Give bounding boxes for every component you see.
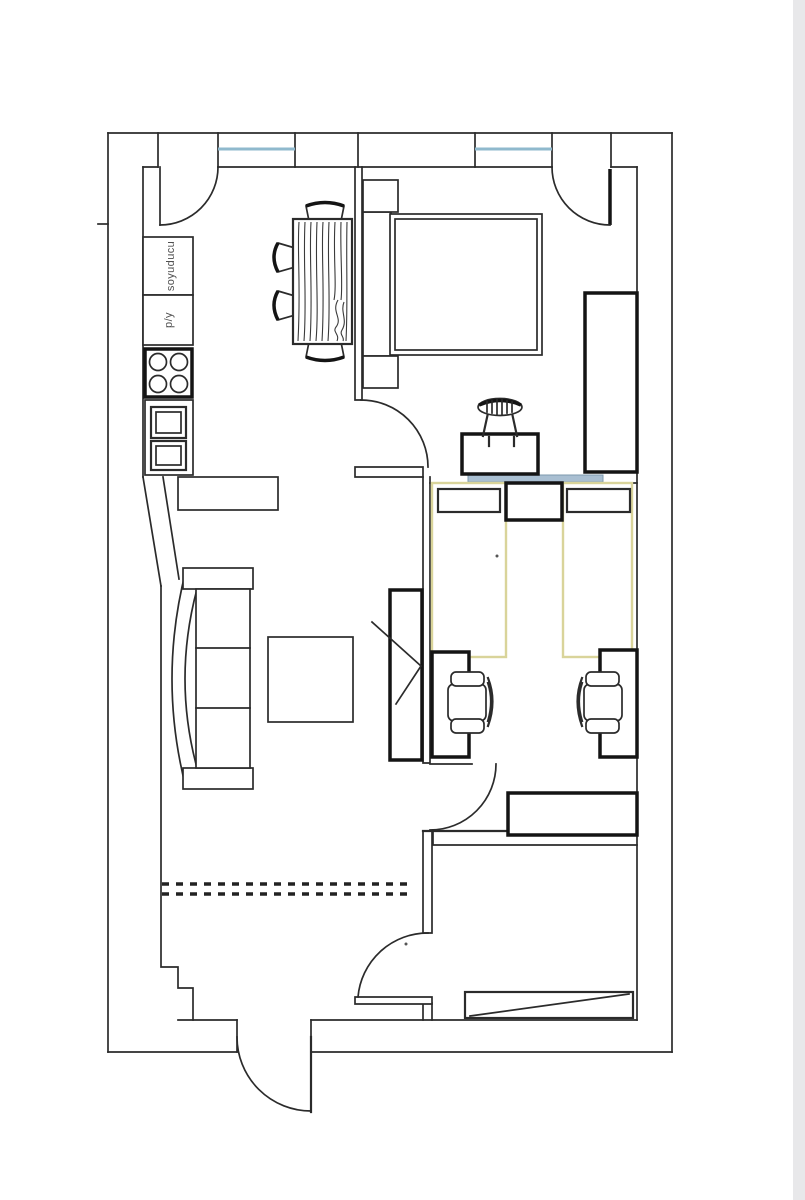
entry-door-jambs (237, 1020, 311, 1052)
door-kidsroom-swing-arc (430, 764, 496, 830)
wall-hall-kidsroom (423, 477, 430, 763)
kids-chair-left-armrest-bottom (451, 719, 484, 733)
door-bedroom (552, 167, 610, 225)
living-room (162, 568, 422, 894)
wall-living-left-steps (161, 586, 193, 1020)
sofa-armrest-bottom (183, 768, 253, 789)
kitchen-counter (178, 477, 278, 510)
ceiling-beam-dashed-lines (162, 884, 408, 894)
floor-plan-canvas: soyuducu p/y (0, 0, 805, 1200)
sofa-armrest-top (183, 568, 253, 589)
kids-chair-left-seat (448, 684, 486, 721)
kids-nightstand (506, 483, 562, 520)
door-entry-swing-arc (237, 1037, 311, 1111)
kids-chair-right (578, 672, 623, 733)
dining-chair-left-1-back (274, 243, 278, 272)
wall-kitchen-bedroom (355, 167, 362, 400)
wall-hall-stub (355, 467, 423, 477)
sofa (172, 568, 253, 789)
floor-plan-drawing: soyuducu p/y (0, 0, 805, 1200)
coffee-table (268, 637, 353, 722)
scan-edge-strip (793, 0, 805, 1200)
nightstand-bottom (363, 356, 398, 388)
door-kidsroom (430, 764, 496, 830)
tv-unit (372, 590, 422, 760)
wall-kitchen-diagonal (143, 477, 179, 586)
kitchen: soyuducu p/y (143, 237, 278, 510)
wall-hall-bathroom (423, 831, 432, 933)
kids-wardrobe (508, 793, 637, 835)
wall-bathroom-door-jamb (423, 1003, 432, 1020)
nightstand-top (363, 180, 398, 212)
plan-speck (496, 555, 499, 558)
kids-bed-right-pillow (567, 489, 630, 512)
stove (145, 349, 192, 397)
door-bedroom-hall-swing-arc (361, 400, 428, 467)
door-kitchen-swing-arc (160, 167, 218, 225)
kids-chair-left (448, 672, 493, 733)
kids-bed-left-pillow (438, 489, 500, 512)
sofa-seat (196, 589, 250, 768)
dining-area (274, 203, 352, 361)
double-bed-frame (390, 214, 542, 355)
bed-headboard (363, 212, 391, 356)
kids-room (432, 483, 637, 835)
bathroom (405, 943, 634, 1019)
washing-machine-label: p/y (163, 312, 175, 328)
kids-chair-left-backrest (488, 678, 493, 726)
door-bathroom-swing-arc (358, 933, 428, 997)
door-bedroom-hall (361, 400, 428, 467)
plan-speck (405, 943, 408, 946)
bedroom-stool (478, 399, 522, 437)
kids-chair-right-backrest (578, 678, 583, 726)
dining-chair-left-1 (274, 243, 295, 272)
dining-chair-left-2 (274, 291, 295, 320)
fridge-label: soyuducu (165, 241, 177, 291)
bedroom-desk-area (462, 399, 538, 475)
sofa-back-outer (172, 570, 186, 788)
dining-chair-bottom-back (306, 357, 344, 361)
bedroom-wardrobe (585, 293, 637, 472)
tv-cabinet (390, 590, 422, 760)
door-kitchen (160, 167, 218, 225)
door-bathroom-leaf (355, 997, 432, 1004)
door-bedroom-swing-arc (552, 167, 610, 225)
dining-table (293, 219, 352, 344)
bedroom-desk (462, 434, 538, 474)
door-bathroom (355, 933, 432, 1004)
kids-chair-right-seat (584, 684, 622, 721)
door-entry (237, 1037, 311, 1112)
dining-chair-top-back (306, 203, 344, 207)
kids-chair-right-armrest-bottom (586, 719, 619, 733)
kids-chair-right-armrest-top (586, 672, 619, 686)
kitchen-sink (145, 400, 193, 475)
kids-chair-left-armrest-top (451, 672, 484, 686)
window-kidsroom-partition (468, 475, 603, 482)
dining-chair-left-2-back (274, 291, 278, 320)
